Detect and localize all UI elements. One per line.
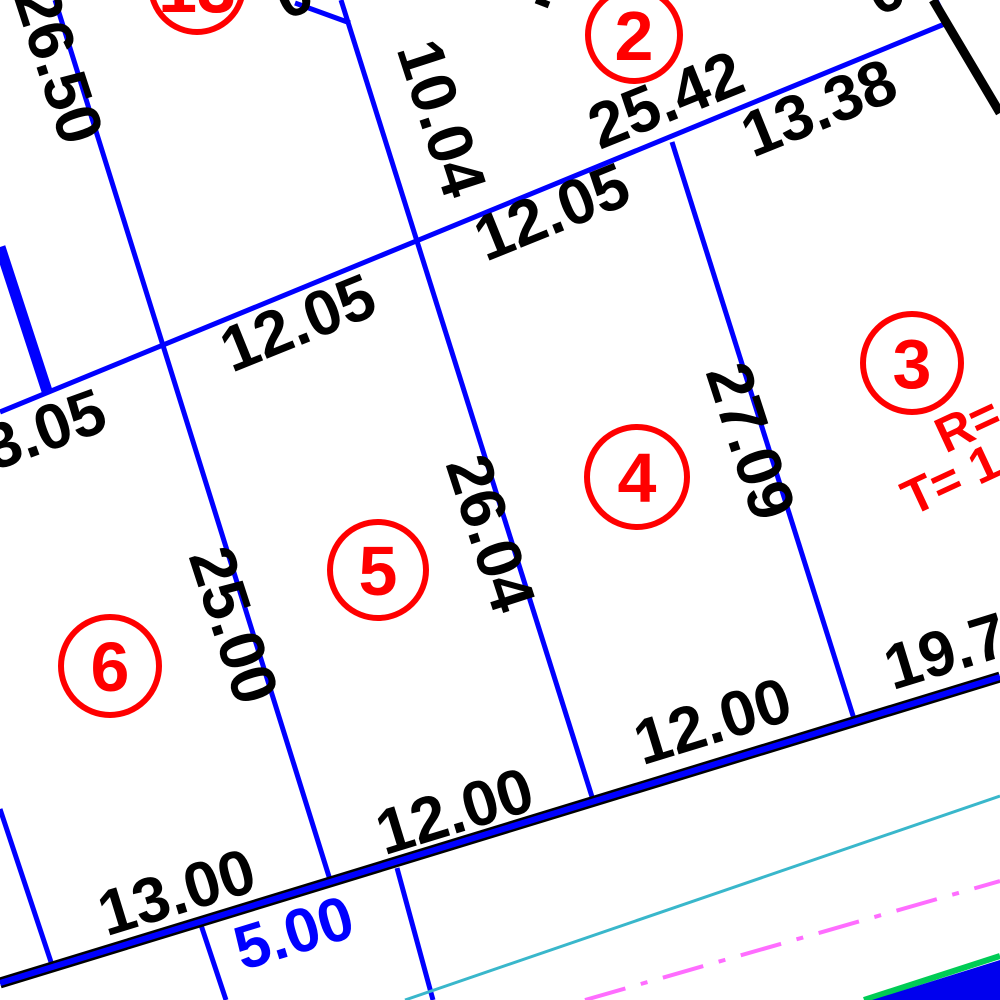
- dimension-label: 12.05: [210, 259, 385, 386]
- lot-marker-6: 6: [61, 617, 159, 715]
- lot-line-bottom-left: [0, 809, 53, 968]
- partial-dimension-label: 0: [264, 0, 322, 33]
- dimension-label: 25.00: [175, 538, 293, 713]
- dimension-label: 3.05: [0, 374, 115, 484]
- lot-marker-3: 3: [863, 314, 961, 412]
- dimension-label: 26.50: [0, 0, 118, 152]
- dimension-label: 12.00: [367, 753, 541, 869]
- row-stub-left: [200, 922, 226, 1000]
- heavy-lot-line-left: [0, 247, 47, 391]
- dimension-label: 13.38: [731, 44, 906, 171]
- lot-marker-4: 4: [587, 427, 687, 527]
- lot-number: 13: [158, 0, 236, 27]
- dimension-label: 10.04: [383, 31, 501, 206]
- partial-text-stub: [536, 0, 549, 5]
- lot-marker-13: 13: [151, 0, 243, 32]
- lot-number: 6: [91, 628, 130, 706]
- row-stub-right: [397, 868, 433, 1000]
- lot-number: 3: [893, 325, 932, 403]
- partial-dimension-label: 0: [856, 0, 914, 29]
- curve-annotations: R= T= 1: [893, 385, 1000, 526]
- lot-marker-2: 2: [588, 0, 680, 81]
- boundary-line-top-right: [933, 0, 1000, 113]
- lot-marker-5: 5: [330, 522, 426, 618]
- plat-drawing-canvas: 26.50 10.04 25.42 13.38 12.05 12.05 3.05…: [0, 0, 1000, 1000]
- dimension-label: 27.09: [692, 354, 810, 529]
- dimension-label: 25.42: [578, 36, 753, 163]
- lot-number: 2: [615, 0, 654, 75]
- lot-number: 5: [359, 532, 398, 610]
- lot-number: 4: [618, 439, 657, 517]
- dimension-label: 26.04: [432, 446, 550, 621]
- plat-drawing: 26.50 10.04 25.42 13.38 12.05 12.05 3.05…: [0, 0, 1000, 1000]
- corner-road-fill-blue: [872, 960, 1000, 1000]
- dimension-labels: 26.50 10.04 25.42 13.38 12.05 12.05 3.05…: [0, 0, 1000, 984]
